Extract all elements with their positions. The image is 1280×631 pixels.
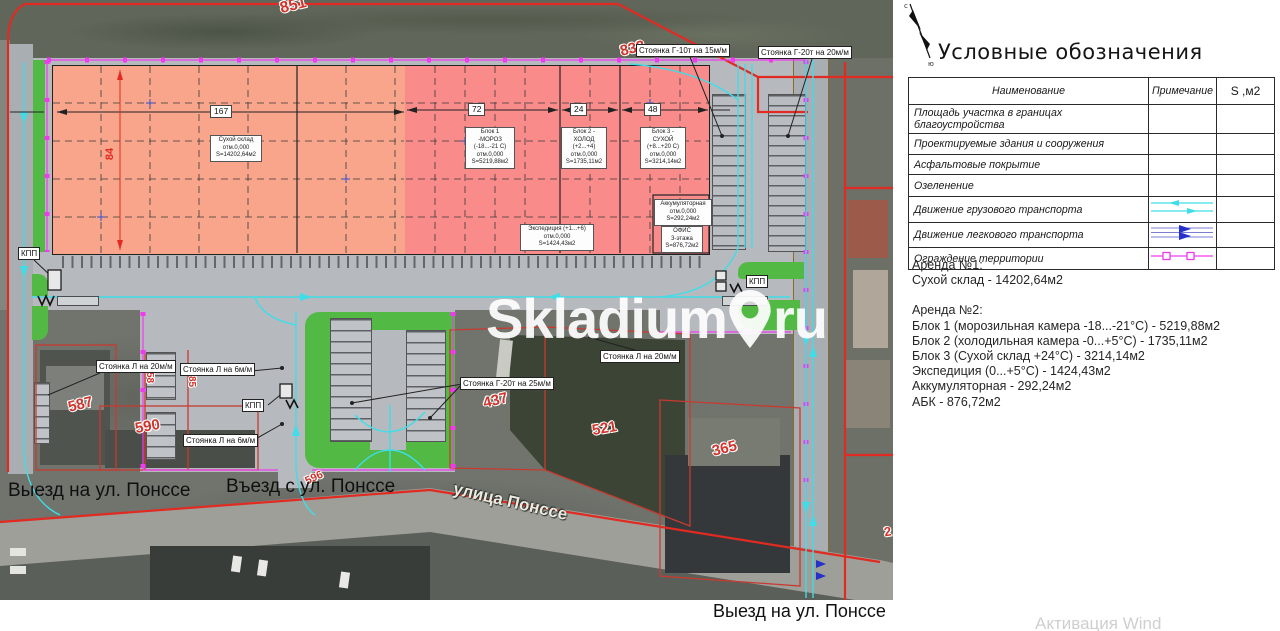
rent-info: Аренда №1: Сухой склад - 14202,64м2 Арен…	[912, 258, 1220, 425]
label-parking-l20-right: Стоянка Л на 20м/м	[600, 350, 680, 363]
legend-row-car-traffic: Движение легкового транспорта	[909, 223, 1275, 248]
rent-a2-line-2: Блок 2 (холодильная камера -0...+5°С) - …	[912, 334, 1208, 348]
legend-row-label: Движение грузового транспорта	[909, 197, 1149, 223]
building-right-c	[845, 360, 890, 428]
legend-row-plot-area: Площадь участка в границах благоустройст…	[909, 105, 1275, 134]
dim-167: 167	[210, 105, 232, 118]
location-pin-icon	[729, 290, 771, 348]
legend-row-asphalt: Асфальтовые покрытие	[909, 155, 1275, 175]
building-sw-roofs	[150, 546, 430, 600]
legend-row-label: Движение легкового транспорта	[909, 223, 1149, 248]
windows-activation-watermark: Активация Wind	[1035, 614, 1161, 631]
legend-row-label: Озеленение	[909, 175, 1149, 197]
legend-row-greenery: Озеленение	[909, 175, 1275, 197]
building-365-roof	[665, 455, 790, 573]
rent-a2-line-6: АБК - 876,72м2	[912, 395, 1001, 409]
label-kpp-left: КПП	[18, 247, 40, 260]
legend-row-truck-traffic: Движение грузового транспорта	[909, 197, 1275, 223]
skladium-watermark: Skladium ru	[486, 290, 827, 348]
legend-title: Условные обозначения	[938, 40, 1203, 64]
site-plan-page: Сухой склад отм.0,000 S=14202,64м2 Блок …	[0, 0, 1280, 631]
legend-swatch-blue-arrows	[1149, 223, 1217, 248]
legend-swatch-none	[1149, 105, 1217, 134]
label-exit-left: Выезд на ул. Понссе	[8, 480, 191, 502]
legend-row-label: Площадь участка в границах благоустройст…	[909, 105, 1149, 134]
label-expedition: Экспедиция (+1...+6) отм.0,000 S=1424,43…	[520, 224, 594, 251]
label-parking-g20-25: Стоянка Г-20т на 25м/м	[460, 377, 554, 390]
parking-truck-row-1	[712, 94, 746, 250]
label-parking-g10: Стоянка Г-10т на 15м/м	[636, 44, 730, 57]
label-accumulator: Аккумуляторная отм.0,000 S=292,24м2	[654, 199, 712, 226]
parking-left-road-row	[34, 382, 50, 444]
legend-swatch-red	[1149, 134, 1217, 155]
label-block2: Блок 2 - ХОЛОД (+2...+4) отм.0,000 S=173…	[561, 127, 607, 169]
legend-swatch-cyan-arrows	[1149, 197, 1217, 223]
watermark-brand-text: Skladium	[486, 291, 727, 347]
dim-48: 48	[644, 103, 661, 116]
truck-row-4	[10, 548, 26, 556]
north-arrow-icon: с ю	[900, 0, 945, 68]
svg-text:ю: ю	[928, 60, 934, 68]
parking-yard-row-2	[406, 330, 446, 442]
legend-row-label: Проектируемые здания и сооружения	[909, 134, 1149, 155]
rent-block-1: Аренда №1: Сухой склад - 14202,64м2	[912, 258, 1220, 288]
rent-block-2: Аренда №2: Блок 1 (морозильная камера -1…	[912, 303, 1220, 409]
rent-a1-title: Аренда №1:	[912, 258, 983, 272]
loading-docks	[62, 256, 702, 268]
dim-24: 24	[570, 103, 587, 116]
building-right-b	[853, 270, 888, 348]
legend-swatch-gray	[1149, 155, 1217, 175]
label-parking-g20-20: Стоянка Г-20т на 20м/м	[758, 46, 852, 59]
green-kpp-left-b	[32, 306, 48, 340]
legend-row-buildings: Проектируемые здания и сооружения	[909, 134, 1275, 155]
parcel-58: 58	[144, 372, 155, 383]
label-block3: Блок 3 - СУХОЙ (+8...+20 С) отм.0,000 S=…	[640, 127, 686, 169]
rent-a2-line-1: Блок 1 (морозильная камера -18...-21°С) …	[912, 319, 1220, 333]
truck-row-5	[10, 566, 26, 574]
parking-yard-row-1	[330, 318, 372, 442]
label-office: ОФИС 3-этажа S=876,72м2	[661, 226, 703, 253]
rent-a1-line: Сухой склад - 14202,64м2	[912, 273, 1063, 287]
green-left-strip	[33, 60, 45, 252]
parcel-85: 85	[186, 376, 197, 387]
label-exit-bottom: Выезд на ул. Понссе	[713, 601, 886, 622]
building-right-a	[848, 200, 888, 258]
green-yard-lane	[370, 330, 406, 450]
rent-a2-line-4: Экспедиция (0...+5°С) - 1424,43м2	[912, 364, 1111, 378]
svg-text:с: с	[904, 2, 908, 10]
master-plan-map: Сухой склад отм.0,000 S=14202,64м2 Блок …	[0, 0, 893, 600]
rent-a2-line-5: Аккумуляторная - 292,24м2	[912, 379, 1071, 393]
label-kpp-right: КПП	[746, 275, 768, 288]
rent-a2-title: Аренда №2:	[912, 303, 983, 317]
label-parking-l20-left: Стоянка Л на 20м/м	[96, 360, 176, 373]
watermark-tld-text: ru	[773, 291, 827, 347]
green-kpp-left-a	[32, 274, 48, 296]
label-block1: Блок 1 -МОРОЗ (-18...-21 С) отм.0,000 S=…	[465, 127, 515, 169]
parking-truck-row-2	[768, 94, 806, 252]
label-kpp-mid: КПП	[242, 399, 264, 412]
dock-ramp-left	[57, 296, 99, 306]
legend-col-area: S ,м2	[1217, 78, 1275, 105]
legend-row-label: Асфальтовые покрытие	[909, 155, 1149, 175]
legend-swatch-green	[1149, 175, 1217, 197]
legend-col-note: Примечание	[1149, 78, 1217, 105]
dim-84: 84	[104, 148, 116, 160]
dim-72: 72	[468, 103, 485, 116]
legend-table: Наименование Примечание S ,м2 Площадь уч…	[908, 77, 1275, 270]
legend-col-name: Наименование	[909, 78, 1149, 105]
label-parking-l6-bottom: Стоянка Л на 6м/м	[183, 434, 258, 447]
rent-a2-line-3: Блок 3 (Сухой склад +24°С) - 3214,14м2	[912, 349, 1145, 363]
label-dry-warehouse: Сухой склад отм.0,000 S=14202,64м2	[210, 135, 262, 162]
label-entry: Въезд с ул. Понссе	[226, 476, 395, 498]
label-parking-l6-top: Стоянка Л на 6м/м	[180, 363, 255, 376]
